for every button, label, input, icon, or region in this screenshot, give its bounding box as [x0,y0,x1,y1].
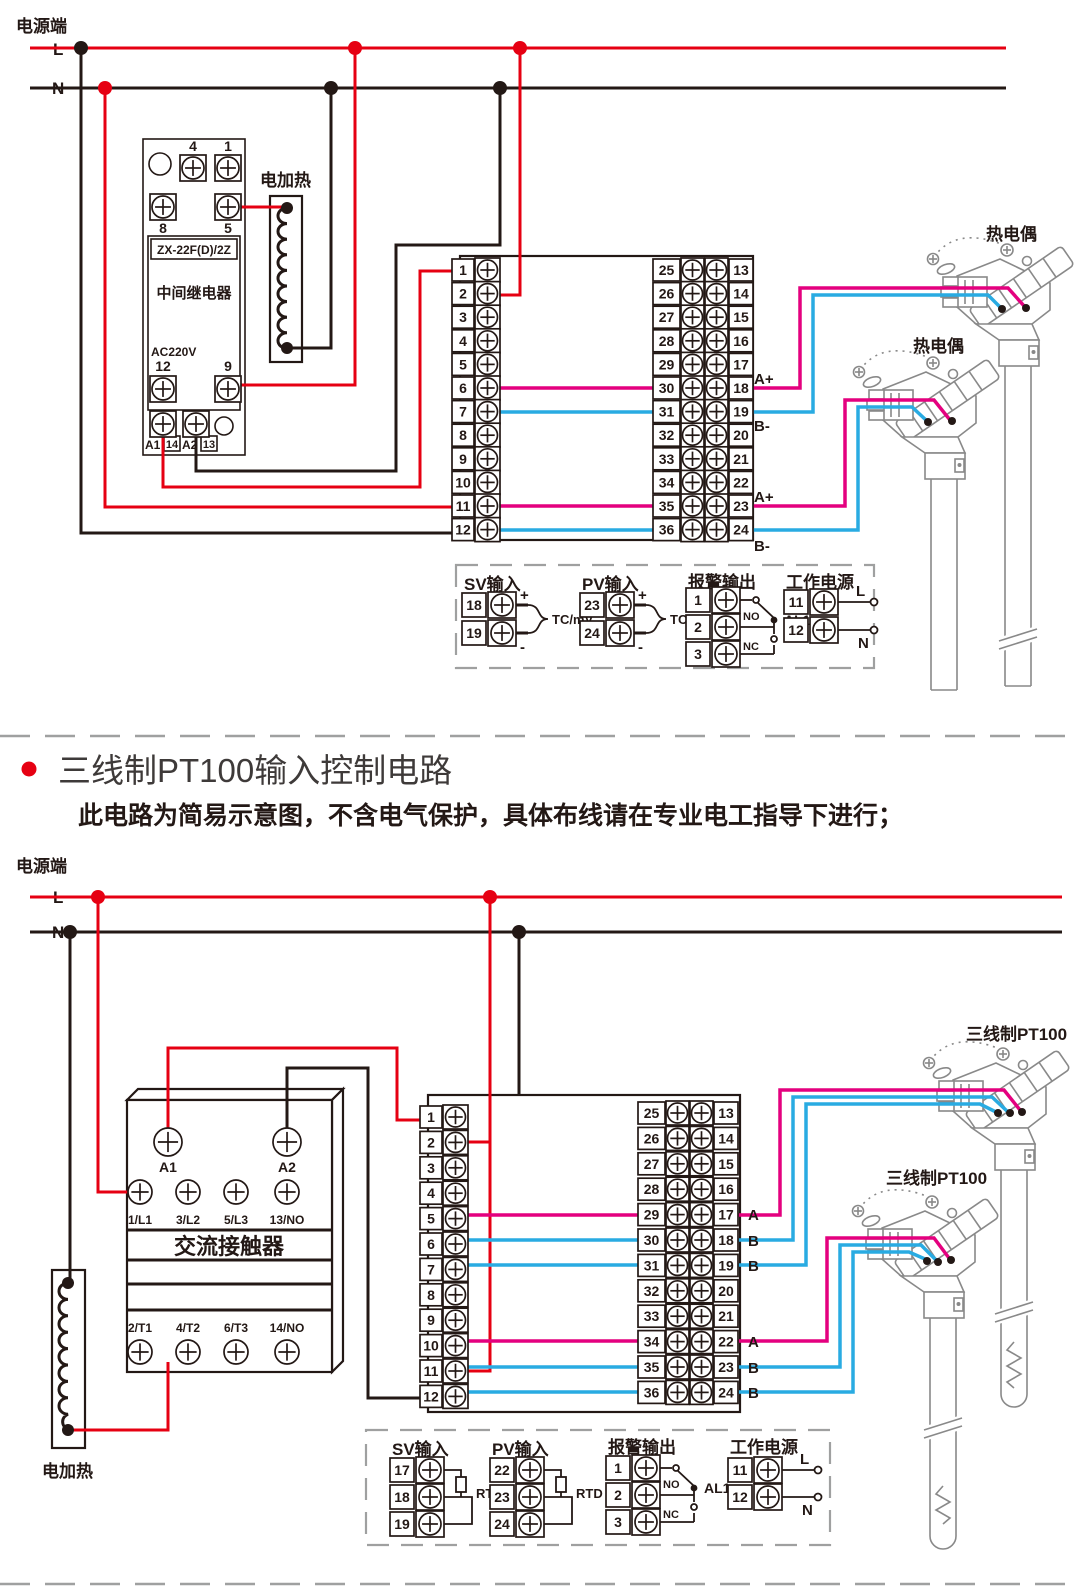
terminal-number: 31 [659,404,675,420]
heater-label: 电加热 [42,1461,93,1481]
terminal-number: 1 [694,592,702,608]
terminal-number: 22 [733,474,749,490]
terminal-number: 36 [659,522,675,538]
terminal-number: 1 [614,1460,622,1476]
terminal-number: 13 [718,1105,734,1121]
polarity-minus: - [520,639,525,656]
wire-label: A+ [754,371,774,388]
nc-contact-label: NC [663,1509,679,1521]
wire-label: A+ [754,489,774,506]
relay-coil-label: 14 [166,439,179,451]
relay-terminal-label: 1 [224,138,232,154]
terminal-number: 29 [659,356,675,372]
terminal-number: 35 [659,498,675,514]
sensor-label: 三线制PT100 [966,1024,1067,1044]
sensor-label: 热电偶 [986,224,1037,244]
terminal-number: 24 [733,522,749,538]
power-lines-icon [838,599,878,634]
terminal-number: 29 [644,1207,660,1223]
terminal-number: 9 [427,1312,435,1328]
terminal-number: 18 [466,597,482,613]
nc-contact-label: NC [743,641,759,653]
detail-terminal-strip: 171819 [390,1457,444,1537]
terminal-number: 20 [733,427,749,443]
terminal-number: 8 [427,1287,435,1303]
pt100-2 [853,1190,1000,1318]
terminal-number: 4 [427,1185,435,1201]
terminal-number: 24 [718,1384,734,1400]
terminal-number: 31 [644,1257,660,1273]
section-title: 三线制PT100输入控制电路 [58,752,452,789]
heater-label: 电加热 [260,170,311,190]
terminal-number: 3 [694,646,702,662]
terminal-number: 27 [659,309,675,325]
terminal-number: 18 [733,380,749,396]
terminal-number: 17 [718,1207,734,1223]
terminal-number: 10 [455,474,471,490]
terminal-number: 23 [494,1489,510,1505]
terminal-number: 11 [733,1462,748,1478]
contactor-terminal-label: 1/L1 [128,1213,152,1227]
intermediate-relay: 4 1 8 5 ZX-22F(D)/2Z 中间继电器 AC220V 12 9 A… [143,138,245,455]
heater-bottom: 电加热 [42,1270,93,1481]
relay-terminal-label: 9 [224,358,232,374]
heater-top: 电加热 [260,170,311,362]
terminal-number: 12 [423,1388,439,1404]
terminal-number: 14 [733,286,749,302]
terminal-number: 33 [644,1308,660,1324]
terminal-number: 9 [459,451,467,467]
power-n-label: N [802,1502,813,1519]
contactor-coil-label: A2 [278,1159,296,1175]
contactor-name: 交流接触器 [174,1234,285,1259]
terminal-number: 23 [733,498,749,514]
pt100-2-probe [923,1318,963,1549]
polarity-plus: + [520,587,529,604]
sv-input-title: SV输入 [464,574,521,594]
terminal-number: 22 [718,1334,734,1350]
sv-input-title: SV输入 [392,1439,449,1459]
terminal-number: 30 [659,380,675,396]
terminal-number: 14 [718,1130,734,1146]
terminal-number: 20 [718,1283,734,1299]
terminal-number: 11 [456,498,471,514]
terminal-number: 12 [788,622,804,638]
terminal-number: 21 [733,451,749,467]
wire-label: B [748,1385,759,1402]
relay-hole-icon [149,153,171,175]
terminal-number: 8 [459,427,467,443]
pv-input-title: PV输入 [492,1439,549,1459]
relay-coil-label: 13 [203,439,215,451]
contactor-coil-label: A1 [159,1159,177,1175]
detail-terminal-strip: 1819 [462,592,516,646]
terminal-number: 19 [394,1516,410,1532]
terminal-number: 12 [732,1489,748,1505]
terminal-number: 1 [427,1109,435,1125]
alarm-name: AL1 [704,1480,731,1496]
wire-label: B [748,1360,759,1377]
terminal-number: 11 [789,594,804,610]
terminal-number: 4 [459,333,467,349]
section-heading: 三线制PT100输入控制电路 此电路为简易示意图，不含电气保护，具体布线请在专业… [22,752,904,830]
polarity-minus: - [638,639,643,656]
terminal-number: 25 [659,262,675,278]
power-terminal-label: 电源端 [16,856,67,876]
terminal-number: 19 [718,1257,734,1273]
terminal-number: 34 [644,1334,660,1350]
relay-coil-label: A1 [145,438,161,452]
work-power-title: 工作电源 [730,1437,798,1457]
terminal-number: 19 [733,404,749,420]
bottom-diagram: 电源端 L N A1 A2 1/L1 3/L2 5/L3 13/NO 交流接触器… [16,856,1070,1549]
sensor-label: 热电偶 [913,336,964,356]
wiring-diagram: 电源端 L N 4 1 8 5 ZX-22F(D)/2Z 中间继电器 AC220… [0,0,1080,1587]
wire-label: A [748,1334,759,1351]
terminal-number: 3 [427,1160,435,1176]
thermocouple-2 [854,351,1001,479]
top-diagram: 电源端 L N 4 1 8 5 ZX-22F(D)/2Z 中间继电器 AC220… [16,16,1074,690]
wiring-diagram-page: 电源端 L N 4 1 8 5 ZX-22F(D)/2Z 中间继电器 AC220… [0,0,1080,1587]
rtd-symbol [544,1470,572,1524]
polarity-plus: + [638,587,647,604]
terminal-number: 26 [644,1130,660,1146]
relay-hole-icon [215,417,233,435]
contactor-terminal-label: 4/T2 [176,1321,200,1335]
thermocouple-1-probe [998,366,1038,686]
terminal-number: 15 [718,1156,734,1172]
power-l-label: L [800,1451,809,1468]
detail-terminal-strip: 1112 [728,1457,782,1510]
terminal-number: 6 [459,380,467,396]
terminal-number: 24 [494,1516,510,1532]
terminal-number: 2 [459,286,467,302]
terminal-number: 28 [644,1181,660,1197]
bullet-icon [22,762,37,777]
terminal-number: 5 [459,356,467,372]
relay-terminal-label: 8 [159,220,167,236]
terminal-number: 16 [733,333,749,349]
terminal-number: 33 [659,451,675,467]
sensor-label: 三线制PT100 [886,1168,987,1188]
wire-label: B [748,1258,759,1275]
terminal-number: 23 [718,1359,734,1375]
terminal-number: 15 [733,309,749,325]
terminal-number: 25 [644,1105,660,1121]
terminal-number: 36 [644,1384,660,1400]
relay-terminal-label: 4 [189,138,197,154]
wire-label: B- [754,418,770,435]
relay-terminal-label: 12 [155,358,171,374]
terminal-strip: 123456789101112 [452,258,500,542]
wire-label: B- [754,538,770,555]
terminal-number: 7 [427,1261,435,1277]
power-lines-icon [782,1467,822,1501]
terminal-number: 27 [644,1156,660,1172]
terminal-number: 19 [466,625,482,641]
terminal-number: 11 [424,1363,439,1379]
terminal-number: 35 [644,1359,660,1375]
contactor-terminal-label: 14/NO [270,1321,305,1335]
terminal-number: 18 [718,1232,734,1248]
detail-terminal-strip: 123 [686,587,740,667]
power-n-label: N [858,635,869,652]
terminal-number: 2 [427,1134,435,1150]
contactor-terminal-label: 6/T3 [224,1321,248,1335]
terminal-number: 17 [733,356,749,372]
contactor-terminal-label: 3/L2 [176,1213,200,1227]
section-subtitle: 此电路为简易示意图，不含电气保护，具体布线请在专业电工指导下进行； [78,801,903,830]
pv-input-title: PV输入 [582,574,639,594]
terminal-number: 30 [644,1232,660,1248]
power-terminal-label: 电源端 [16,16,67,36]
terminal-number: 26 [659,286,675,302]
alarm-output-title: 报警输出 [608,1437,676,1457]
no-contact-label: NO [743,611,760,623]
detail-terminal-strip: 222324 [490,1457,544,1537]
relay-terminal-label: 5 [224,220,232,236]
detail-terminal-strip: 123 [606,1455,660,1535]
relay-voltage: AC220V [151,345,196,359]
rtd-symbol [444,1470,472,1524]
terminal-number: 2 [694,619,702,635]
terminal-number: 17 [394,1462,410,1478]
terminal-number: 2 [614,1487,622,1503]
contactor-terminal-label: 13/NO [270,1213,305,1227]
no-contact-label: NO [663,1479,680,1491]
terminal-number: 1 [459,262,467,278]
contactor-terminal-label: 2/T1 [128,1321,152,1335]
terminal-number: 22 [494,1462,510,1478]
terminal-number: 3 [459,309,467,325]
terminal-strip: 2513261427152816291730183119322033213422… [653,258,753,542]
terminal-number: 23 [584,597,600,613]
terminal-number: 18 [394,1489,410,1505]
terminal-number: 28 [659,333,675,349]
relay-name: 中间继电器 [156,284,232,302]
terminal-number: 7 [459,404,467,420]
terminal-number: 24 [584,625,600,641]
wire-label: A [748,1207,759,1224]
terminal-number: 16 [718,1181,734,1197]
power-l-label: L [856,583,865,600]
terminal-number: 10 [423,1338,439,1354]
terminal-number: 6 [427,1236,435,1252]
pt100-1-probe [994,1170,1034,1407]
terminal-number: 12 [455,522,471,538]
terminal-number: 5 [427,1211,435,1227]
terminal-number: 21 [718,1308,734,1324]
pt100-1 [924,1042,1071,1170]
thermocouple-2-probe [931,479,957,690]
terminal-number: 32 [659,427,675,443]
terminal-number: 13 [733,262,749,278]
wire-label: B [748,1233,759,1250]
terminal-number: 34 [659,474,675,490]
pv-signal-type: RTD [576,1486,603,1501]
terminal-number: 32 [644,1283,660,1299]
contactor-terminal-label: 5/L3 [224,1213,248,1227]
relay-model: ZX-22F(D)/2Z [157,243,231,257]
terminal-number: 3 [614,1514,622,1530]
